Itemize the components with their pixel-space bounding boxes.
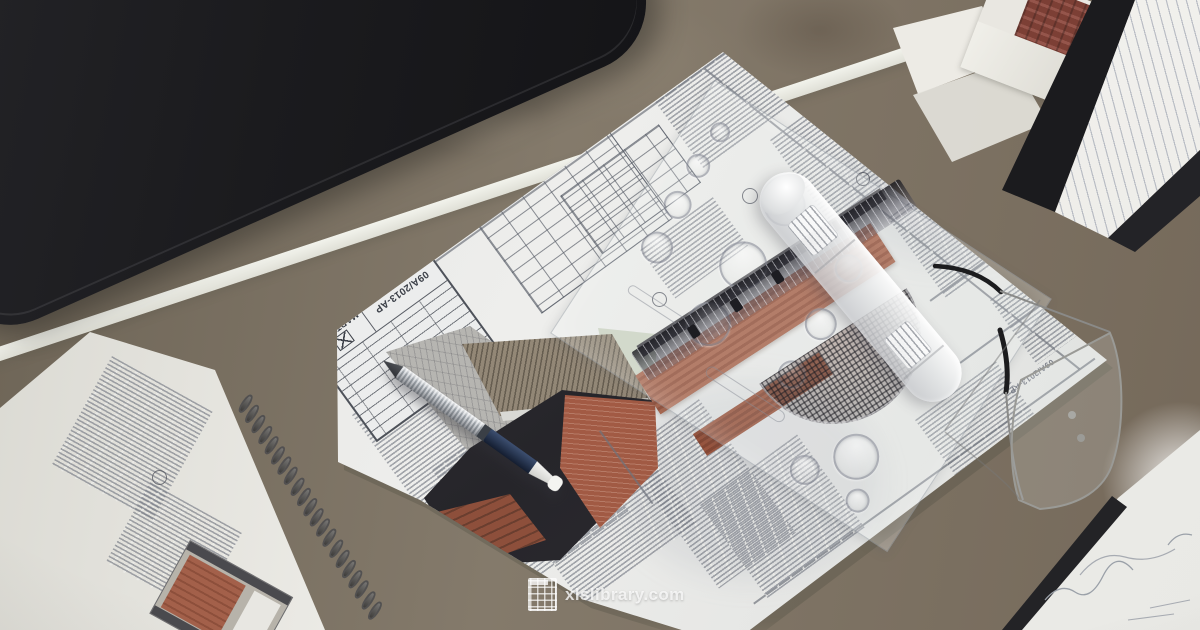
watermark: xlslibrary.com — [528, 578, 685, 611]
watermark-text: xlslibrary.com — [565, 585, 685, 605]
spreadsheet-grid-icon — [528, 578, 557, 611]
scribble — [1128, 600, 1190, 620]
pencil-scribbles — [0, 0, 1200, 630]
scribble — [1045, 561, 1133, 600]
scribble — [1080, 549, 1175, 575]
scribble — [1168, 534, 1192, 545]
desk-photo-scene: 09A/2013-AP MARTYNOV 09A/2013-AP — [0, 0, 1200, 630]
